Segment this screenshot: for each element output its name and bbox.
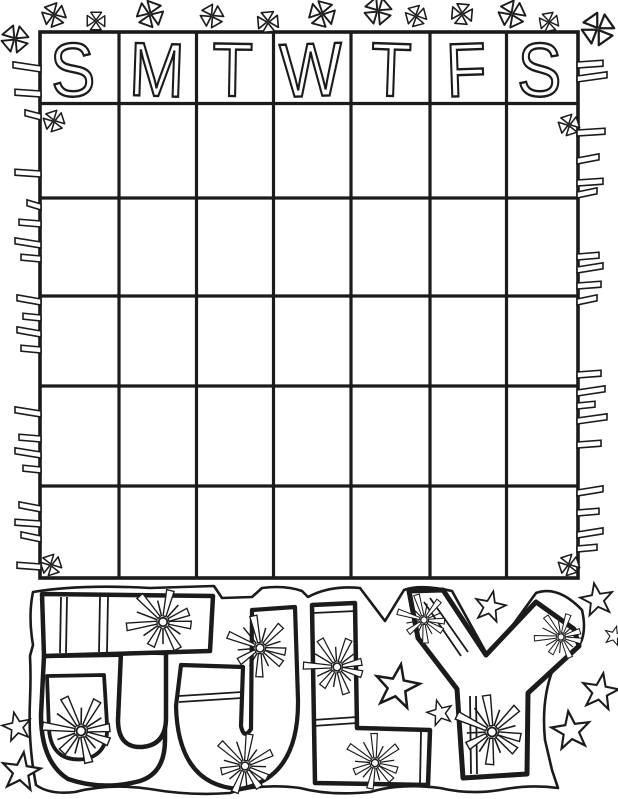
svg-text:F: F xyxy=(444,28,487,114)
svg-text:W: W xyxy=(278,28,343,114)
svg-text:S: S xyxy=(517,28,563,113)
svg-text:T: T xyxy=(212,28,254,113)
svg-text:T: T xyxy=(369,28,412,114)
svg-text:M: M xyxy=(128,28,186,114)
svg-text:S: S xyxy=(48,28,96,114)
